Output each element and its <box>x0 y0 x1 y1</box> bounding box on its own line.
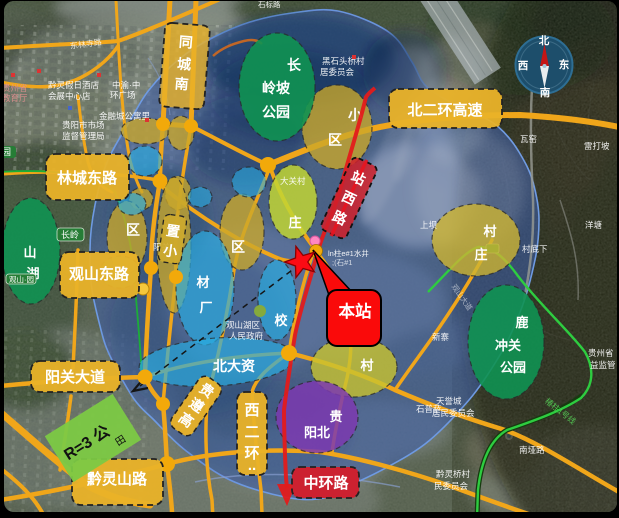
svg-text:新寨: 新寨 <box>432 332 450 342</box>
svg-text:洋塘: 洋塘 <box>585 220 603 230</box>
svg-text:北二环高速: 北二环高速 <box>407 101 482 119</box>
svg-text:东: 东 <box>559 58 570 71</box>
svg-text:山: 山 <box>23 245 36 260</box>
svg-text:置: 置 <box>165 222 181 240</box>
svg-text:区: 区 <box>328 132 342 148</box>
svg-text:黑石头桥村: 黑石头桥村 <box>322 56 365 66</box>
svg-text:大关村: 大关村 <box>280 176 306 186</box>
svg-text:ln柱e#1水井: ln柱e#1水井 <box>328 248 369 258</box>
svg-text:二: 二 <box>244 424 259 441</box>
svg-text:岭坡: 岭坡 <box>262 80 291 96</box>
svg-text:林城东路: 林城东路 <box>57 169 118 187</box>
svg-text:石标路: 石标路 <box>258 0 281 9</box>
svg-text:同: 同 <box>178 34 193 51</box>
svg-text:本站: 本站 <box>339 301 373 321</box>
svg-text:庄: 庄 <box>288 215 301 230</box>
svg-text:黔灵山路: 黔灵山路 <box>87 470 148 488</box>
svg-text:中环路: 中环路 <box>303 474 349 492</box>
svg-text:南: 南 <box>540 86 551 99</box>
svg-text:区: 区 <box>231 239 245 255</box>
svg-text:阳北: 阳北 <box>304 425 330 440</box>
svg-text:村底下: 村底下 <box>522 244 548 254</box>
svg-text:冲关: 冲关 <box>495 338 521 353</box>
svg-text:西: 西 <box>518 60 529 72</box>
svg-text:村: 村 <box>360 358 373 373</box>
svg-text:城: 城 <box>177 55 192 72</box>
svg-text:上坝: 上坝 <box>420 220 438 230</box>
svg-text:瓦窑: 瓦窑 <box>520 134 537 144</box>
svg-text:北大资: 北大资 <box>213 358 255 374</box>
svg-text:贵: 贵 <box>329 409 342 424</box>
svg-text:黔灵桥村: 黔灵桥村 <box>436 469 471 479</box>
svg-text:公园: 公园 <box>500 360 526 375</box>
svg-text:..: .. <box>248 457 256 474</box>
svg-text:村: 村 <box>483 224 496 239</box>
svg-text:观山东路: 观山东路 <box>69 265 130 283</box>
svg-text:观山·园: 观山·园 <box>9 274 34 284</box>
svg-text:人民政府: 人民政府 <box>229 331 264 341</box>
svg-text:居民委员会: 居民委员会 <box>432 408 475 418</box>
svg-text:会展中心店: 会展中心店 <box>48 91 91 101</box>
svg-text:天誉城: 天誉城 <box>436 396 462 406</box>
svg-text:材: 材 <box>196 275 209 290</box>
svg-text:小: 小 <box>162 242 178 260</box>
svg-text:雷打坡: 雷打坡 <box>584 141 610 151</box>
svg-text:阳关大道: 阳关大道 <box>45 368 105 386</box>
svg-text:居委员会: 居委员会 <box>320 67 355 77</box>
svg-text:西: 西 <box>244 402 259 419</box>
svg-text:贵州省: 贵州省 <box>2 83 28 93</box>
svg-text:环广场: 环广场 <box>110 90 136 100</box>
svg-text:贵州省: 贵州省 <box>588 348 614 358</box>
svg-text:南垭路: 南垭路 <box>519 445 545 455</box>
svg-text:长: 长 <box>287 57 302 73</box>
svg-text:民委员会: 民委员会 <box>434 481 469 491</box>
svg-text:校: 校 <box>274 313 288 328</box>
svg-text:厂: 厂 <box>199 300 212 315</box>
svg-text:公园: 公园 <box>262 104 290 120</box>
svg-text:贵阳市市场: 贵阳市市场 <box>62 120 105 130</box>
svg-text:观山湖区: 观山湖区 <box>226 320 261 330</box>
svg-text:;(石#1: ;(石#1 <box>332 258 352 267</box>
svg-text:庄: 庄 <box>474 247 487 262</box>
svg-text:中渝·中: 中渝·中 <box>112 80 140 90</box>
svg-text:园: 园 <box>2 147 11 157</box>
svg-text:益监管: 益监管 <box>590 360 616 370</box>
svg-text:北: 北 <box>539 34 550 47</box>
svg-text:南: 南 <box>174 75 189 92</box>
svg-text:金融城公寓里: 金融城公寓里 <box>99 111 151 121</box>
svg-text:区: 区 <box>126 222 140 238</box>
svg-text:监督管理局: 监督管理局 <box>62 131 105 141</box>
svg-text:长岭: 长岭 <box>61 229 79 240</box>
svg-text:鹿: 鹿 <box>515 315 528 330</box>
svg-text:教育厅: 教育厅 <box>2 93 28 103</box>
svg-text:黔灵假日酒店: 黔灵假日酒店 <box>48 80 100 90</box>
